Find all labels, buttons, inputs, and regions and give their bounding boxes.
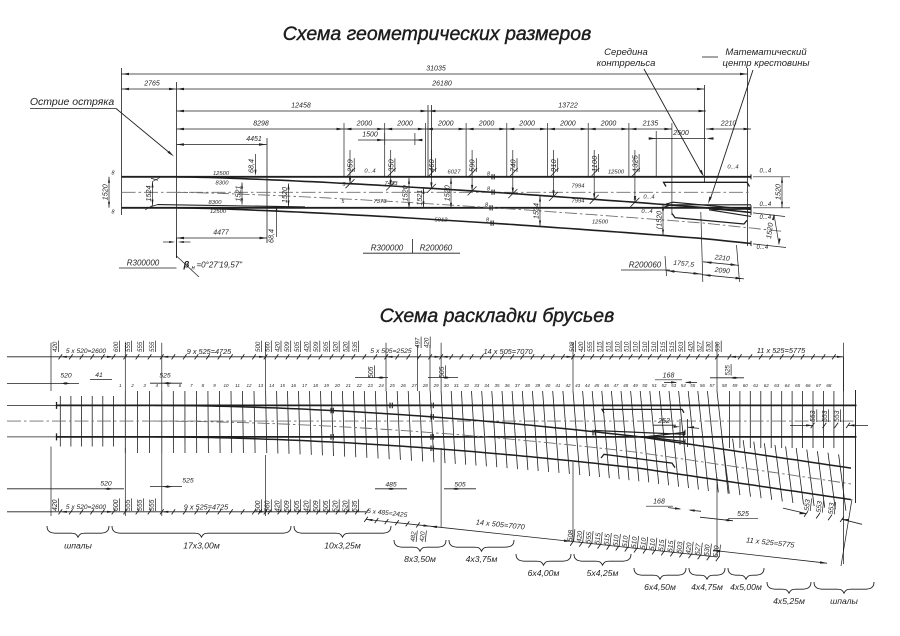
- svg-text:510: 510: [633, 341, 640, 352]
- svg-text:420: 420: [52, 499, 59, 511]
- svg-text:8: 8: [202, 383, 205, 388]
- svg-text:6: 6: [179, 383, 182, 388]
- svg-text:525: 525: [737, 511, 749, 518]
- svg-text:4: 4: [156, 383, 159, 388]
- svg-text:11 x 525=5775: 11 x 525=5775: [757, 346, 806, 355]
- svg-text:2000: 2000: [559, 121, 576, 128]
- svg-text:520: 520: [342, 500, 349, 512]
- svg-text:509: 509: [313, 341, 320, 352]
- svg-text:60: 60: [743, 383, 749, 388]
- svg-text:56: 56: [700, 383, 706, 388]
- svg-text:555: 555: [149, 499, 156, 511]
- svg-text:1500: 1500: [362, 132, 378, 139]
- svg-text:54: 54: [681, 383, 687, 388]
- svg-text:34: 34: [484, 383, 490, 388]
- svg-text:8300: 8300: [216, 181, 230, 187]
- svg-text:5: 5: [343, 182, 346, 188]
- svg-text:12: 12: [246, 383, 252, 388]
- svg-text:центр крестовины: центр крестовины: [723, 58, 810, 69]
- svg-text:0...4: 0...4: [760, 168, 772, 174]
- svg-text:64: 64: [785, 383, 791, 388]
- svg-text:3: 3: [143, 383, 146, 388]
- svg-text:67: 67: [816, 383, 822, 388]
- svg-text:535: 535: [352, 341, 359, 352]
- svg-text:55: 55: [690, 383, 696, 388]
- svg-text:1757,5: 1757,5: [673, 260, 695, 269]
- svg-text:553: 553: [834, 410, 841, 422]
- svg-text:65: 65: [795, 383, 801, 388]
- svg-text:59: 59: [732, 383, 738, 388]
- svg-text:505: 505: [294, 500, 301, 512]
- svg-text:5: 5: [634, 196, 637, 202]
- svg-text:555: 555: [125, 341, 132, 352]
- svg-text:2000: 2000: [437, 121, 454, 128]
- svg-text:43: 43: [575, 383, 581, 388]
- svg-text:2000: 2000: [600, 121, 617, 128]
- svg-text:0...4: 0...4: [364, 169, 375, 175]
- svg-text:515: 515: [660, 341, 667, 352]
- svg-text:520: 520: [100, 480, 112, 487]
- svg-text:520: 520: [60, 373, 72, 380]
- svg-text:525: 525: [725, 365, 732, 376]
- svg-text:420: 420: [52, 341, 59, 352]
- svg-text:2210: 2210: [713, 254, 730, 263]
- svg-text:530: 530: [706, 341, 713, 352]
- svg-text:32: 32: [464, 383, 470, 388]
- svg-text:20: 20: [334, 383, 341, 388]
- svg-text:2000: 2000: [518, 121, 535, 128]
- svg-text:553: 553: [810, 410, 817, 422]
- svg-text:0...4: 0...4: [757, 245, 769, 251]
- svg-text:1524: 1524: [532, 203, 541, 219]
- svg-text:600: 600: [113, 499, 120, 511]
- svg-text:252: 252: [657, 418, 670, 425]
- svg-text:1520: 1520: [101, 184, 110, 200]
- svg-text:1524: 1524: [144, 186, 153, 202]
- svg-text:6x4,00м: 6x4,00м: [528, 568, 560, 578]
- svg-text:8: 8: [112, 171, 115, 177]
- svg-text:12500: 12500: [592, 219, 609, 225]
- svg-text:26180: 26180: [431, 81, 452, 88]
- svg-text:11: 11: [235, 383, 240, 388]
- svg-text:5 x 485=2425: 5 x 485=2425: [367, 508, 408, 519]
- svg-text:14 x 505=7070: 14 x 505=7070: [483, 347, 533, 356]
- svg-text:510: 510: [615, 341, 622, 352]
- svg-text:31035: 31035: [426, 66, 446, 73]
- svg-text:9 x 525=4725: 9 x 525=4725: [184, 503, 229, 512]
- svg-text:527: 527: [696, 341, 703, 352]
- svg-text:509: 509: [284, 500, 291, 512]
- svg-text:10x3,25м: 10x3,25м: [324, 541, 361, 551]
- svg-text:17x3,00м: 17x3,00м: [183, 541, 220, 551]
- svg-text:500: 500: [255, 500, 262, 512]
- svg-text:168: 168: [653, 499, 665, 506]
- svg-text:18: 18: [313, 383, 319, 388]
- svg-text:41: 41: [95, 372, 103, 379]
- svg-text:5: 5: [342, 199, 345, 205]
- svg-text:1520: 1520: [443, 185, 452, 201]
- svg-text:R200060: R200060: [420, 244, 453, 253]
- svg-text:0...4: 0...4: [641, 209, 652, 215]
- svg-text:0...4: 0...4: [760, 215, 772, 221]
- svg-text:47: 47: [613, 383, 619, 388]
- svg-text:505: 505: [368, 366, 375, 378]
- svg-text:27: 27: [411, 383, 418, 388]
- svg-text:17: 17: [302, 383, 308, 388]
- svg-text:8: 8: [485, 202, 488, 208]
- svg-text:33: 33: [474, 383, 480, 388]
- svg-text:45: 45: [594, 383, 600, 388]
- svg-text:555: 555: [149, 341, 156, 352]
- svg-text:R200060: R200060: [629, 261, 662, 270]
- svg-text:2: 2: [130, 383, 134, 388]
- svg-text:5912: 5912: [435, 218, 449, 224]
- svg-text:12500: 12500: [608, 169, 625, 175]
- svg-text:шпалы: шпалы: [64, 541, 92, 551]
- svg-text:5 x 520=2600: 5 x 520=2600: [66, 348, 106, 355]
- svg-text:1521: 1521: [415, 190, 424, 206]
- svg-text:2000: 2000: [396, 121, 413, 128]
- svg-text:68,4: 68,4: [267, 229, 276, 243]
- svg-text:23: 23: [367, 383, 374, 388]
- svg-text:22: 22: [356, 383, 363, 388]
- svg-text:48: 48: [623, 383, 629, 388]
- svg-text:29: 29: [433, 383, 440, 388]
- svg-text:500: 500: [255, 341, 262, 352]
- svg-text:420: 420: [304, 341, 311, 352]
- svg-text:13722: 13722: [558, 103, 578, 110]
- svg-text:508: 508: [569, 341, 576, 352]
- svg-text:Схема геометрических размеров: Схема геометрических размеров: [283, 23, 592, 45]
- svg-text:66: 66: [805, 383, 811, 388]
- svg-text:57: 57: [709, 383, 715, 388]
- svg-text:560: 560: [265, 500, 272, 512]
- svg-text:51: 51: [652, 383, 658, 388]
- svg-text:42: 42: [565, 383, 571, 388]
- svg-text:8: 8: [112, 210, 115, 216]
- svg-text:1520: 1520: [774, 184, 783, 200]
- svg-text:509: 509: [284, 341, 291, 352]
- svg-text:26: 26: [400, 383, 407, 388]
- svg-text:11 x 525=5775: 11 x 525=5775: [746, 535, 796, 549]
- svg-text:53: 53: [671, 383, 677, 388]
- svg-text:509: 509: [313, 500, 320, 512]
- svg-text:4x4,75м: 4x4,75м: [691, 582, 723, 592]
- svg-text:505: 505: [323, 341, 330, 352]
- svg-text:2000: 2000: [356, 121, 373, 128]
- svg-text:68,4: 68,4: [247, 159, 256, 173]
- svg-text:25: 25: [389, 383, 396, 388]
- svg-text:=0°27'19,57": =0°27'19,57": [197, 261, 244, 270]
- svg-text:520: 520: [333, 500, 340, 512]
- svg-text:168: 168: [663, 372, 675, 379]
- svg-text:555: 555: [137, 499, 144, 511]
- svg-text:7: 7: [190, 383, 193, 388]
- svg-text:1520: 1520: [764, 222, 775, 239]
- svg-text:52: 52: [661, 383, 667, 388]
- svg-text:24: 24: [378, 383, 385, 388]
- svg-text:38: 38: [525, 383, 531, 388]
- svg-text:485: 485: [385, 481, 397, 488]
- svg-text:7994: 7994: [572, 199, 585, 205]
- svg-text:шпалы: шпалы: [830, 596, 858, 606]
- svg-text:12458: 12458: [291, 103, 311, 110]
- svg-text:R300000: R300000: [371, 244, 404, 253]
- svg-text:5 x 520=2600: 5 x 520=2600: [66, 504, 106, 511]
- svg-text:555: 555: [587, 341, 594, 352]
- svg-text:520: 520: [342, 341, 349, 352]
- svg-text:1520: 1520: [280, 187, 289, 203]
- svg-text:1521: 1521: [234, 186, 243, 202]
- svg-text:420: 420: [274, 500, 281, 512]
- svg-text:530: 530: [715, 341, 722, 352]
- svg-text:515: 515: [669, 341, 676, 352]
- svg-text:0...4: 0...4: [760, 202, 772, 208]
- svg-text:510: 510: [642, 341, 649, 352]
- svg-text:10: 10: [223, 383, 229, 388]
- svg-text:2090: 2090: [713, 267, 730, 276]
- svg-text:1520: 1520: [401, 185, 410, 201]
- svg-text:63: 63: [774, 383, 780, 388]
- svg-text:503: 503: [678, 341, 685, 352]
- svg-text:6027: 6027: [448, 169, 462, 175]
- svg-text:4x5,00м: 4x5,00м: [730, 582, 762, 592]
- svg-text:520: 520: [333, 341, 340, 352]
- svg-text:505: 505: [294, 341, 301, 352]
- svg-text:61: 61: [753, 383, 759, 388]
- svg-text:R300000: R300000: [127, 259, 160, 268]
- svg-text:497: 497: [415, 337, 422, 348]
- svg-text:505: 505: [323, 500, 330, 512]
- svg-text:8300: 8300: [209, 200, 223, 206]
- svg-text:14: 14: [269, 383, 275, 388]
- svg-text:12500: 12500: [213, 171, 230, 177]
- svg-text:4x3,75м: 4x3,75м: [466, 554, 498, 564]
- svg-text:контррельса: контррельса: [597, 58, 656, 69]
- svg-text:4477: 4477: [213, 230, 230, 237]
- svg-text:525: 525: [182, 477, 194, 484]
- svg-text:525: 525: [159, 373, 171, 380]
- svg-text:Схема раскладки брусьев: Схема раскладки брусьев: [380, 305, 615, 327]
- svg-text:68: 68: [826, 383, 832, 388]
- svg-text:420: 420: [274, 341, 281, 352]
- svg-text:7373: 7373: [374, 199, 388, 205]
- svg-text:(1520: (1520: [655, 211, 664, 229]
- svg-text:0...4: 0...4: [727, 164, 738, 170]
- svg-text:35: 35: [494, 383, 500, 388]
- svg-text:420: 420: [578, 341, 585, 352]
- svg-text:0...4: 0...4: [643, 194, 654, 200]
- svg-text:8: 8: [486, 218, 489, 224]
- svg-text:505: 505: [439, 366, 446, 378]
- svg-text:Середина: Середина: [604, 47, 648, 58]
- svg-text:510: 510: [651, 341, 658, 352]
- svg-text:4451: 4451: [246, 136, 262, 143]
- svg-text:600: 600: [113, 341, 120, 352]
- svg-text:5 x 505=2525: 5 x 505=2525: [370, 348, 412, 355]
- svg-text:19: 19: [324, 383, 330, 388]
- svg-text:7994: 7994: [572, 184, 585, 190]
- svg-text:1: 1: [119, 383, 122, 388]
- svg-text:2000: 2000: [478, 121, 495, 128]
- svg-text:15: 15: [280, 383, 286, 388]
- svg-text:46: 46: [604, 383, 610, 388]
- svg-text:44: 44: [585, 383, 591, 388]
- svg-text:50: 50: [642, 383, 648, 388]
- svg-text:505: 505: [454, 481, 466, 488]
- svg-text:510: 510: [624, 341, 631, 352]
- svg-text:12500: 12500: [210, 209, 227, 215]
- svg-text:515: 515: [605, 341, 612, 352]
- svg-text:515: 515: [596, 341, 603, 352]
- svg-text:8298: 8298: [253, 121, 269, 128]
- svg-text:7433: 7433: [385, 181, 399, 187]
- svg-text:30: 30: [444, 383, 450, 388]
- svg-text:37: 37: [515, 383, 521, 388]
- svg-text:14 x 505=7070: 14 x 505=7070: [475, 517, 526, 531]
- svg-text:420: 420: [687, 341, 694, 352]
- svg-text:62: 62: [764, 383, 770, 388]
- svg-text:420: 420: [424, 337, 431, 348]
- svg-text:8: 8: [487, 187, 490, 193]
- svg-text:40: 40: [545, 383, 551, 388]
- svg-text:5x4,25м: 5x4,25м: [587, 568, 619, 578]
- svg-text:58: 58: [722, 383, 728, 388]
- svg-text:2135: 2135: [642, 121, 659, 128]
- svg-text:Острие остряка: Острие остряка: [30, 96, 114, 108]
- svg-text:9 x 525=4725: 9 x 525=4725: [187, 347, 232, 356]
- svg-text:16: 16: [291, 383, 297, 388]
- svg-text:6x4,50м: 6x4,50м: [644, 582, 676, 592]
- svg-text:8: 8: [487, 171, 490, 177]
- svg-text:4x5,25м: 4x5,25м: [773, 596, 805, 606]
- svg-text:28: 28: [422, 383, 429, 388]
- svg-text:9: 9: [213, 383, 216, 388]
- svg-text:420: 420: [304, 500, 311, 512]
- svg-text:31: 31: [454, 383, 460, 388]
- svg-text:555: 555: [125, 499, 132, 511]
- svg-text:13: 13: [258, 383, 264, 388]
- svg-text:553: 553: [822, 410, 829, 422]
- svg-text:39: 39: [535, 383, 541, 388]
- svg-text:2765: 2765: [143, 81, 160, 88]
- svg-text:535: 535: [352, 500, 359, 512]
- svg-text:Математический: Математический: [725, 47, 807, 58]
- svg-text:41: 41: [555, 383, 561, 388]
- svg-text:8x3,50м: 8x3,50м: [404, 554, 436, 564]
- svg-text:21: 21: [345, 383, 352, 388]
- svg-text:49: 49: [633, 383, 639, 388]
- svg-text:36: 36: [505, 383, 511, 388]
- svg-text:555: 555: [137, 341, 144, 352]
